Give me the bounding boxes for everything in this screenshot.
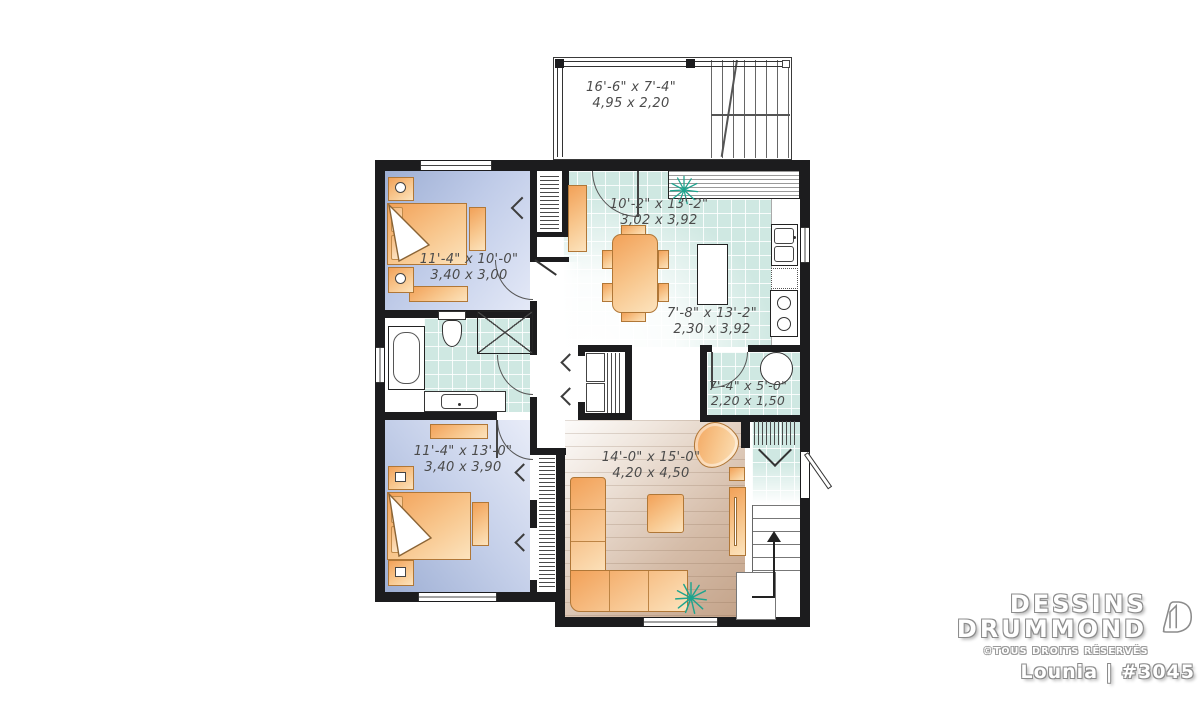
dining-dim-imperial: 10'-2" x 13'-2"	[598, 197, 720, 213]
window-bedroom1	[420, 161, 492, 170]
wall-alcove-bottom	[537, 257, 569, 262]
laundry-wall-top	[748, 345, 800, 352]
dresser	[409, 286, 468, 302]
window-kitchen	[801, 227, 809, 263]
lamp-icon	[395, 182, 406, 193]
deck-dim-imperial: 16'-6" x 7'-4"	[570, 80, 692, 96]
dining-chair	[658, 250, 669, 269]
pantry-shelf	[586, 383, 605, 412]
bedroom2-dim-imperial: 11'-4" x 13'-0"	[402, 444, 524, 460]
coffee-table	[647, 494, 684, 533]
dining-chair	[602, 250, 613, 269]
laundry-wall-top	[700, 345, 712, 352]
toilet-tank	[438, 311, 466, 320]
sink-bowl	[774, 228, 794, 244]
laundry-dim-imperial: 7'-4" x 5'-0"	[696, 378, 800, 393]
window-living	[643, 618, 718, 626]
room-label-kitchen: 7'-8" x 13'-2" 2,30 x 3,92	[652, 306, 772, 338]
window-bathroom	[376, 347, 384, 383]
floor-plan-canvas: 16'-6" x 7'-4" 4,95 x 2,20	[0, 0, 1200, 711]
sofa-section-horizontal	[570, 570, 688, 612]
living-dim-metric: 4,20 x 4,50	[590, 466, 712, 482]
wall-closet2-stub	[530, 500, 537, 528]
bedroom1-dim-imperial: 11'-4" x 10'-0"	[408, 252, 530, 268]
stair-arrow-shaft	[773, 541, 775, 598]
brand-line2: DRUMMOND	[957, 617, 1147, 642]
room-label-deck: 16'-6" x 7'-4" 4,95 x 2,20	[570, 80, 692, 112]
dining-chair	[621, 312, 646, 322]
burner-icon	[777, 296, 791, 310]
window-bedroom2	[418, 593, 497, 601]
dining-dim-metric: 3,02 x 3,92	[598, 213, 720, 229]
dining-chair	[602, 283, 613, 302]
shower	[477, 311, 533, 354]
sink-bowl	[774, 246, 794, 262]
room-label-living: 14'-0" x 15'-0" 4,20 x 4,50	[590, 450, 712, 482]
side-table	[729, 467, 745, 481]
pantry-rod	[607, 353, 623, 413]
wall-closet2-right	[556, 448, 565, 592]
dresser	[472, 502, 489, 546]
pantry-wall-stub	[578, 345, 585, 356]
deck-stairs-landing-line	[711, 114, 790, 116]
burner-icon	[777, 317, 791, 331]
bathtub-basin	[393, 332, 420, 384]
wall-spine	[530, 171, 537, 262]
brand-logo: DESSINS DRUMMOND ©TOUS DROITS RÉSERVÉS L…	[955, 590, 1195, 683]
wall-bath-bed2	[375, 412, 497, 420]
brand-d-mark-icon	[1155, 590, 1195, 644]
plant-icon	[673, 580, 709, 616]
blanket-fold-icon	[387, 492, 439, 560]
laundry-dim-metric: 2,20 x 1,50	[696, 393, 800, 408]
dining-chair	[658, 283, 669, 302]
lamp-icon	[395, 273, 406, 284]
bedroom2-dim-metric: 3,40 x 3,90	[402, 460, 524, 476]
plan-name: Lounia | #3045	[955, 661, 1195, 683]
deck-railing-left	[557, 61, 563, 157]
room-label-bedroom2: 11'-4" x 13'-0" 3,40 x 3,90	[402, 444, 524, 476]
kitchen-island	[697, 244, 728, 305]
pantry-wall-bottom	[578, 413, 632, 420]
pantry-wall-right	[625, 345, 632, 420]
kitchen-dim-imperial: 7'-8" x 13'-2"	[652, 306, 772, 322]
wall-spine	[530, 397, 537, 420]
deck-post	[686, 59, 695, 68]
pantry-wall-top	[578, 345, 632, 352]
tv-icon	[734, 497, 737, 546]
room-label-laundry: 7'-4" x 5'-0" 2,20 x 1,50	[696, 378, 800, 408]
closet1-rod	[540, 176, 559, 230]
stair-run-line	[752, 596, 774, 598]
room-label-dining: 10'-2" x 13'-2" 3,02 x 3,92	[598, 197, 720, 229]
room-label-bedroom1: 11'-4" x 10'-0" 3,40 x 3,00	[408, 252, 530, 284]
entry-floor-fade	[752, 462, 800, 508]
deck-railing-top	[557, 61, 786, 67]
brand-copyright: ©TOUS DROITS RÉSERVÉS	[983, 646, 1195, 657]
deck-dim-metric: 4,95 x 2,20	[570, 96, 692, 112]
dishwasher	[771, 268, 798, 289]
wall-closet2-stub	[530, 580, 537, 592]
wall-closet1-bottom	[537, 232, 569, 237]
up-arrow-icon	[767, 531, 781, 542]
sofa-section-vertical	[570, 477, 606, 577]
closet2-rod	[539, 458, 555, 588]
pantry-wall-stub	[578, 402, 585, 420]
brand-line1: DESSINS	[957, 592, 1147, 617]
faucet-icon	[793, 236, 796, 239]
dresser	[430, 424, 488, 439]
kitchen-dim-metric: 2,30 x 3,92	[652, 322, 772, 338]
living-dim-imperial: 14'-0" x 15'-0"	[590, 450, 712, 466]
dining-table	[612, 234, 658, 313]
pantry-shelf	[586, 353, 605, 382]
bedroom1-dim-metric: 3,40 x 3,00	[408, 268, 530, 284]
brand-wordmark: DESSINS DRUMMOND	[957, 592, 1147, 642]
deck-post	[782, 60, 790, 68]
lamp-icon	[395, 567, 406, 577]
refrigerator	[568, 185, 587, 252]
faucet-icon	[458, 403, 461, 406]
entry-wall-left	[741, 415, 750, 448]
tv-console	[729, 487, 746, 556]
dresser	[469, 207, 486, 251]
deck-post	[555, 59, 564, 68]
vanity-sink	[441, 394, 478, 409]
